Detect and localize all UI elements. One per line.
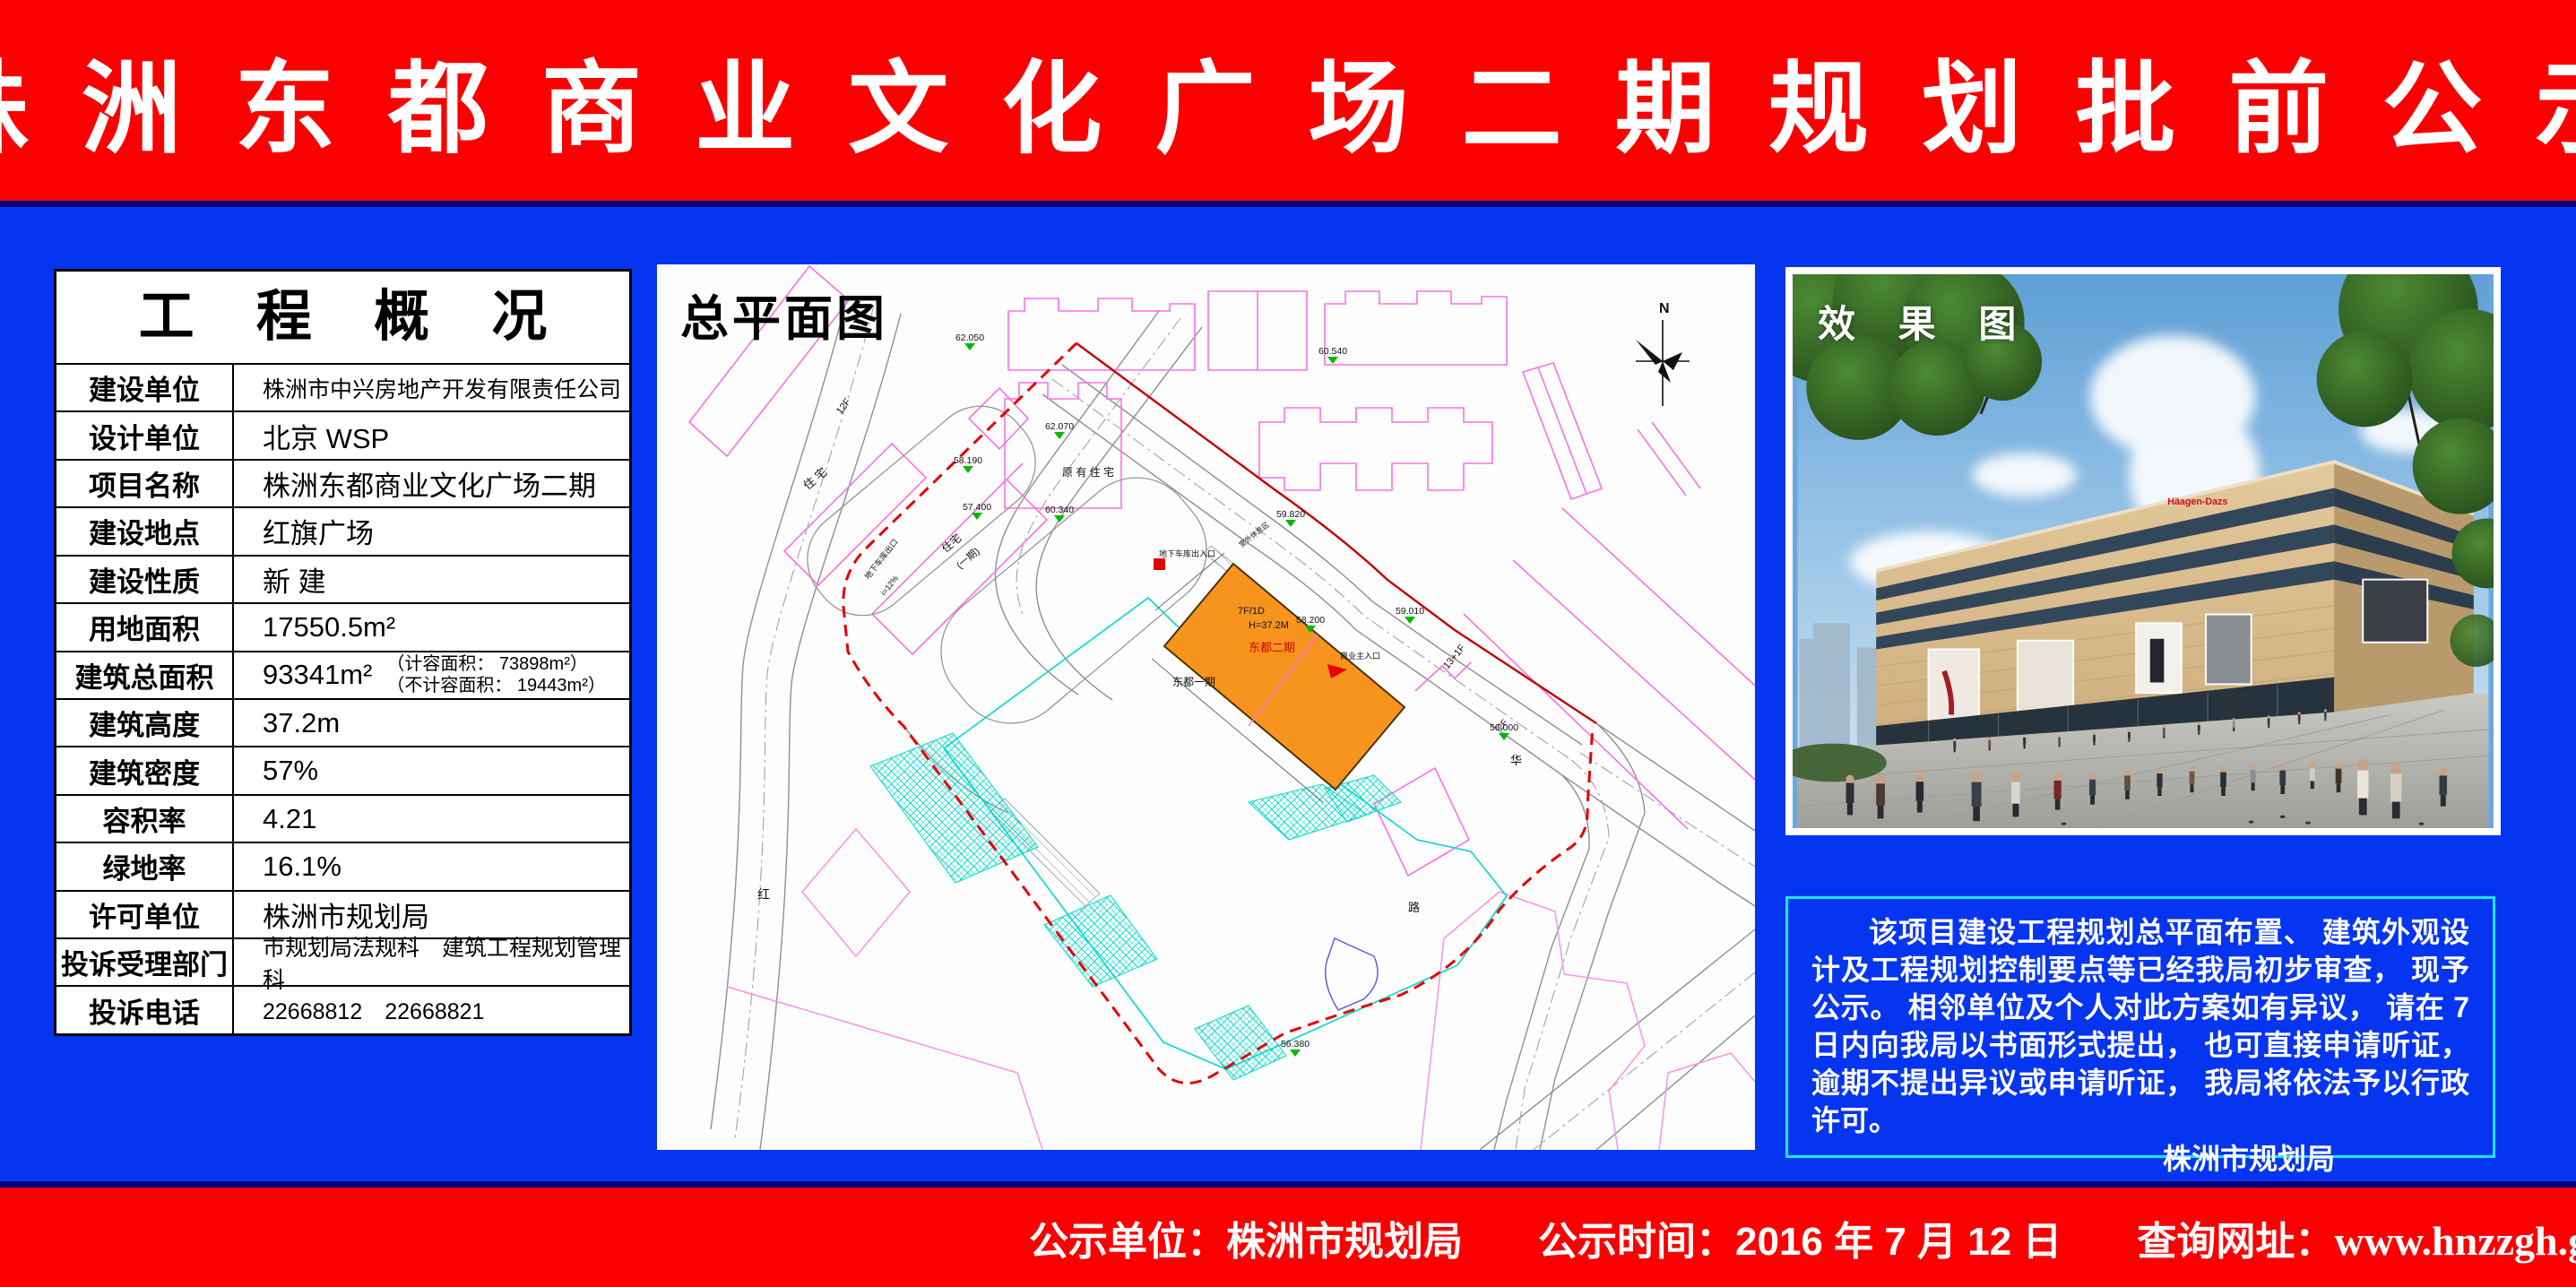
plan-label: 华 xyxy=(1510,754,1522,767)
plan-label: 7F/1D xyxy=(1238,606,1265,617)
row-value: 株洲东都商业文化广场二期 xyxy=(234,461,629,506)
plan-label: 红 xyxy=(757,887,770,902)
elevation-value: 60.340 xyxy=(1045,505,1074,515)
row-label: 用地面积 xyxy=(56,604,234,650)
page-title: 株 洲 东 都 商 业 文 化 广 场 二 期 规 划 批 前 公 示 xyxy=(0,28,2576,173)
plan-label: 原 有 住 宅 xyxy=(1062,465,1114,479)
effect-rendering-photo: Häagen-Dazs xyxy=(1785,267,2501,835)
elevation-value: 58.200 xyxy=(1296,615,1325,626)
row-label: 绿地率 xyxy=(56,843,234,889)
overview-rows: 建设单位株洲市中兴房地产开发有限责任公司设计单位北京 WSP项目名称株洲东都商业… xyxy=(56,363,629,1033)
footer-bar: 公示单位：株洲市规划局 公示时间：2016 年 7 月 12 日 查询网址：ww… xyxy=(0,1181,2576,1287)
notice-text: 该项目建设工程规划总平面布置、 建筑外观设计及工程规划控制要点等已经我局初步审查… xyxy=(1811,913,2469,1139)
table-row: 建筑高度37.2m xyxy=(56,698,629,746)
table-row: 设计单位北京 WSP xyxy=(56,410,629,458)
table-row: 投诉电话22668812 22668821 xyxy=(56,985,629,1032)
row-label: 建设地点 xyxy=(56,508,234,554)
row-label: 建筑高度 xyxy=(56,700,234,746)
row-label: 投诉电话 xyxy=(56,987,234,1032)
plan-label: 东都一期 xyxy=(1172,676,1215,688)
row-label: 容积率 xyxy=(56,796,234,842)
plan-label: 商业主入口 xyxy=(1340,651,1380,661)
notice-box: 该项目建设工程规划总平面布置、 建筑外观设计及工程规划控制要点等已经我局初步审查… xyxy=(1785,896,2495,1158)
elevation-value: 60.540 xyxy=(1318,346,1347,357)
header-banner: 株 洲 东 都 商 业 文 化 广 场 二 期 规 划 批 前 公 示 xyxy=(0,0,2576,207)
row-value: 新 建 xyxy=(234,557,629,602)
elevation-value: 58.190 xyxy=(954,455,982,466)
row-value: 市规划局法规科 建筑工程规划管理科 xyxy=(234,939,629,985)
footer-time-label: 公示时间： xyxy=(1538,1220,1735,1264)
plan-label: 地下车库出入口 xyxy=(1159,548,1215,558)
right-column: Häagen-Dazs xyxy=(1785,267,2501,1163)
plan-garage-entry-marker xyxy=(1154,558,1165,570)
row-label: 建筑总面积 xyxy=(56,652,234,698)
elevation-value: 56.380 xyxy=(1281,1039,1310,1049)
table-row: 项目名称株洲东都商业文化广场二期 xyxy=(56,459,629,506)
elevation-value: 62.070 xyxy=(1045,421,1074,432)
notice-board: 株 洲 东 都 商 业 文 化 广 场 二 期 规 划 批 前 公 示 工 程 … xyxy=(0,0,2576,1287)
footer-unit-value: 株洲市规划局 xyxy=(1226,1220,1463,1264)
footer-url-value: www.hnzzgh.gov.cn xyxy=(2334,1218,2576,1264)
overview-title: 工 程 概 况 xyxy=(56,272,629,363)
site-plan-title: 总平面图 xyxy=(680,279,888,350)
row-value: 57% xyxy=(234,747,629,793)
plan-label: H=37.2M xyxy=(1249,620,1289,631)
row-label: 建筑密度 xyxy=(56,747,234,793)
elevation-value: 62.050 xyxy=(955,333,984,343)
footer-unit-label: 公示单位： xyxy=(1029,1220,1226,1264)
row-label: 设计单位 xyxy=(56,412,234,458)
row-label: 投诉受理部门 xyxy=(56,939,234,985)
site-plan-panel: 62.05060.54062.07058.19057.40060.34059.8… xyxy=(657,264,1755,1150)
row-label: 许可单位 xyxy=(56,892,234,937)
site-plan-drawing: 62.05060.54062.07058.19057.40060.34059.8… xyxy=(657,264,1755,1150)
table-row: 投诉受理部门市规划局法规科 建筑工程规划管理科 xyxy=(56,937,629,985)
elevation-value: 59.010 xyxy=(1396,606,1424,617)
effect-photo-title: 效 果 图 xyxy=(1818,294,2032,349)
table-row: 用地面积17550.5m² xyxy=(56,602,629,650)
row-value: 北京 WSP xyxy=(234,412,629,458)
row-value: 22668812 22668821 xyxy=(234,987,629,1032)
table-row: 建筑密度57% xyxy=(56,746,629,793)
elevation-value: 59.820 xyxy=(1276,509,1305,520)
notice-signature: 株洲市规划局 xyxy=(1811,1139,2469,1179)
row-value: 4.21 xyxy=(234,796,629,842)
table-row: 绿地率16.1% xyxy=(56,842,629,889)
row-value: 16.1% xyxy=(234,843,629,889)
row-value-notes: （计容面积： 73898m²）（不计容面积： 19443m²） xyxy=(386,653,606,696)
table-row: 建设单位株洲市中兴房地产开发有限责任公司 xyxy=(56,363,629,410)
table-row: 建设地点红旗广场 xyxy=(56,506,629,554)
brand-sign: Häagen-Dazs xyxy=(2167,497,2227,507)
row-label: 建设性质 xyxy=(56,557,234,602)
row-value: 株洲市中兴房地产开发有限责任公司 xyxy=(234,365,629,410)
table-row: 建筑总面积93341m²（计容面积： 73898m²）（不计容面积： 19443… xyxy=(56,651,629,698)
row-value: 93341m²（计容面积： 73898m²）（不计容面积： 19443m²） xyxy=(234,652,629,698)
elevation-value: 57.400 xyxy=(963,502,991,513)
footer-url-label: 查询网址： xyxy=(2137,1220,2334,1264)
row-value: 17550.5m² xyxy=(234,604,629,650)
plan-label: N xyxy=(1659,301,1670,316)
row-label: 项目名称 xyxy=(56,461,234,506)
footer-url: 查询网址：www.hnzzgh.gov.cn xyxy=(2137,1209,2576,1266)
plan-label: 路 xyxy=(1408,901,1420,914)
row-value: 37.2m xyxy=(234,700,629,746)
effect-rendering-scene: Häagen-Dazs xyxy=(1793,274,2494,828)
table-row: 建设性质新 建 xyxy=(56,555,629,602)
plan-background xyxy=(657,264,1755,1150)
row-value: 红旗广场 xyxy=(234,508,629,554)
billboard-figure xyxy=(2150,639,2165,683)
row-label: 建设单位 xyxy=(56,365,234,410)
footer-time-value: 2016 年 7 月 12 日 xyxy=(1735,1220,2062,1264)
plan-label: 东都二期 xyxy=(1249,641,1295,654)
footer-time: 公示时间：2016 年 7 月 12 日 xyxy=(1538,1209,2062,1266)
table-row: 容积率4.21 xyxy=(56,794,629,842)
project-overview-table: 工 程 概 况 建设单位株洲市中兴房地产开发有限责任公司设计单位北京 WSP项目… xyxy=(54,269,632,1036)
footer-unit: 公示单位：株洲市规划局 xyxy=(1029,1209,1463,1266)
